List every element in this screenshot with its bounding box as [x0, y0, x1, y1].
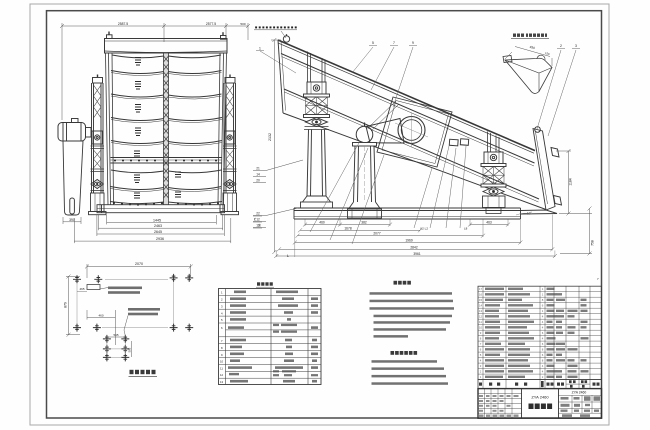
svg-text:500: 500: [240, 22, 245, 26]
svg-text:13: 13: [256, 224, 260, 228]
svg-text:465: 465: [79, 287, 84, 291]
svg-text:13: 13: [479, 309, 483, 313]
svg-text:20: 20: [256, 179, 260, 183]
svg-text:13: 13: [220, 380, 224, 384]
svg-text:16: 16: [479, 293, 483, 297]
svg-text:2077: 2077: [373, 232, 381, 236]
svg-text:1678: 1678: [344, 226, 352, 230]
svg-text:460: 460: [98, 314, 103, 318]
svg-text:585: 585: [128, 347, 132, 352]
svg-text:L8: L8: [464, 227, 468, 231]
svg-text:12: 12: [256, 218, 260, 222]
svg-text:758: 758: [591, 240, 595, 246]
svg-text:10: 10: [479, 326, 483, 330]
svg-text:879: 879: [64, 302, 68, 308]
svg-text:545: 545: [113, 333, 118, 337]
svg-text:21: 21: [256, 167, 260, 171]
svg-text:22: 22: [256, 212, 260, 216]
svg-text:2070: 2070: [135, 262, 143, 266]
svg-text:2587.5: 2587.5: [118, 22, 128, 26]
svg-text:1: 1: [259, 47, 261, 51]
svg-text:2: 2: [560, 44, 562, 48]
svg-text:1445: 1445: [153, 218, 161, 222]
svg-text:14: 14: [479, 304, 483, 308]
svg-text:2577.5: 2577.5: [206, 22, 216, 26]
svg-text:5: 5: [372, 41, 374, 45]
svg-text:U2 L2: U2 L2: [420, 227, 428, 231]
svg-text:ZYA 2460: ZYA 2460: [572, 390, 587, 394]
svg-text:12: 12: [479, 315, 483, 319]
svg-text:12: 12: [220, 373, 224, 377]
svg-text:1184: 1184: [569, 178, 573, 185]
svg-text:2463: 2463: [154, 224, 162, 228]
svg-text:ZYA 2460: ZYA 2460: [531, 395, 549, 400]
svg-text:17: 17: [479, 287, 483, 291]
svg-text:3: 3: [575, 44, 577, 48]
svg-text:7: 7: [393, 41, 395, 45]
svg-text:3961: 3961: [413, 252, 421, 256]
svg-text:15: 15: [479, 298, 483, 302]
svg-text:10: 10: [220, 360, 224, 364]
svg-text:2645: 2645: [154, 230, 162, 234]
svg-text:382: 382: [361, 221, 367, 225]
svg-text:463: 463: [486, 221, 492, 225]
svg-text:11: 11: [220, 367, 223, 371]
svg-text:14: 14: [256, 173, 260, 177]
svg-text:1969: 1969: [405, 239, 413, 243]
svg-text:9: 9: [412, 41, 414, 45]
svg-text:■■■■■■■■■■■■: ■■■■■■■■■■■■: [255, 25, 298, 30]
svg-text:11: 11: [479, 320, 482, 324]
svg-text:460: 460: [319, 221, 325, 225]
svg-text:2132: 2132: [268, 133, 272, 141]
svg-text:2936: 2936: [156, 237, 164, 241]
svg-text:2842: 2842: [410, 245, 418, 249]
